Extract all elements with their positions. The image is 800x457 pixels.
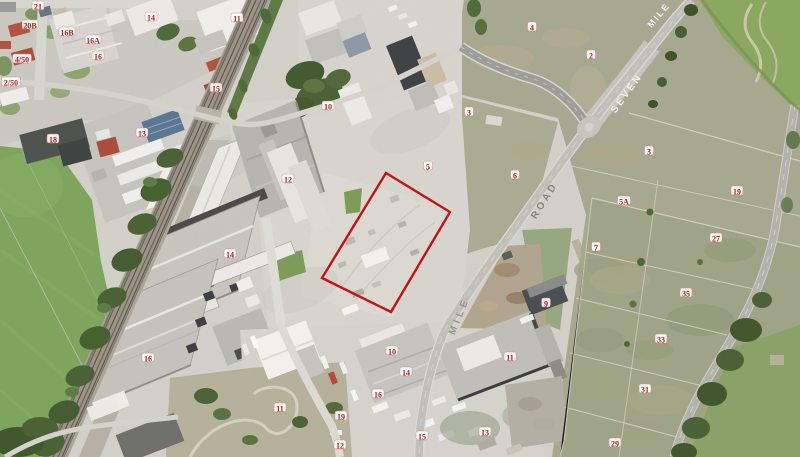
svg-text:16B: 16B bbox=[60, 28, 74, 37]
svg-text:27: 27 bbox=[712, 234, 720, 243]
svg-text:11: 11 bbox=[506, 353, 514, 362]
svg-text:13: 13 bbox=[138, 129, 146, 138]
svg-text:16: 16 bbox=[374, 390, 382, 399]
svg-text:33: 33 bbox=[657, 335, 665, 344]
svg-text:9: 9 bbox=[544, 299, 548, 308]
svg-text:29: 29 bbox=[611, 439, 619, 448]
svg-text:11: 11 bbox=[233, 14, 241, 23]
svg-text:2/50: 2/50 bbox=[4, 78, 18, 87]
svg-text:14: 14 bbox=[402, 368, 410, 377]
svg-text:10: 10 bbox=[388, 347, 396, 356]
svg-text:19: 19 bbox=[337, 412, 345, 421]
svg-text:16: 16 bbox=[94, 52, 102, 61]
svg-text:21: 21 bbox=[34, 2, 42, 11]
svg-text:7: 7 bbox=[594, 243, 598, 252]
svg-text:14: 14 bbox=[226, 250, 234, 259]
svg-text:3: 3 bbox=[647, 147, 651, 156]
svg-text:13: 13 bbox=[481, 428, 489, 437]
svg-text:5A: 5A bbox=[619, 197, 629, 206]
svg-text:6: 6 bbox=[513, 171, 517, 180]
svg-text:5: 5 bbox=[426, 162, 430, 171]
svg-text:15: 15 bbox=[212, 84, 220, 93]
svg-text:12: 12 bbox=[336, 441, 344, 450]
svg-text:2: 2 bbox=[589, 51, 593, 60]
svg-text:4/50: 4/50 bbox=[15, 55, 29, 64]
svg-text:12: 12 bbox=[284, 175, 292, 184]
svg-text:15: 15 bbox=[418, 432, 426, 441]
svg-text:16: 16 bbox=[144, 354, 152, 363]
svg-text:16A: 16A bbox=[86, 36, 100, 45]
svg-text:19: 19 bbox=[733, 187, 741, 196]
svg-text:10: 10 bbox=[324, 102, 332, 111]
svg-text:31: 31 bbox=[641, 385, 649, 394]
svg-text:18: 18 bbox=[49, 135, 57, 144]
svg-text:14: 14 bbox=[147, 13, 155, 22]
svg-text:11: 11 bbox=[276, 404, 284, 413]
svg-text:4: 4 bbox=[530, 23, 534, 32]
svg-text:35: 35 bbox=[682, 289, 690, 298]
svg-text:20B: 20B bbox=[23, 21, 37, 30]
svg-text:3: 3 bbox=[467, 108, 471, 117]
